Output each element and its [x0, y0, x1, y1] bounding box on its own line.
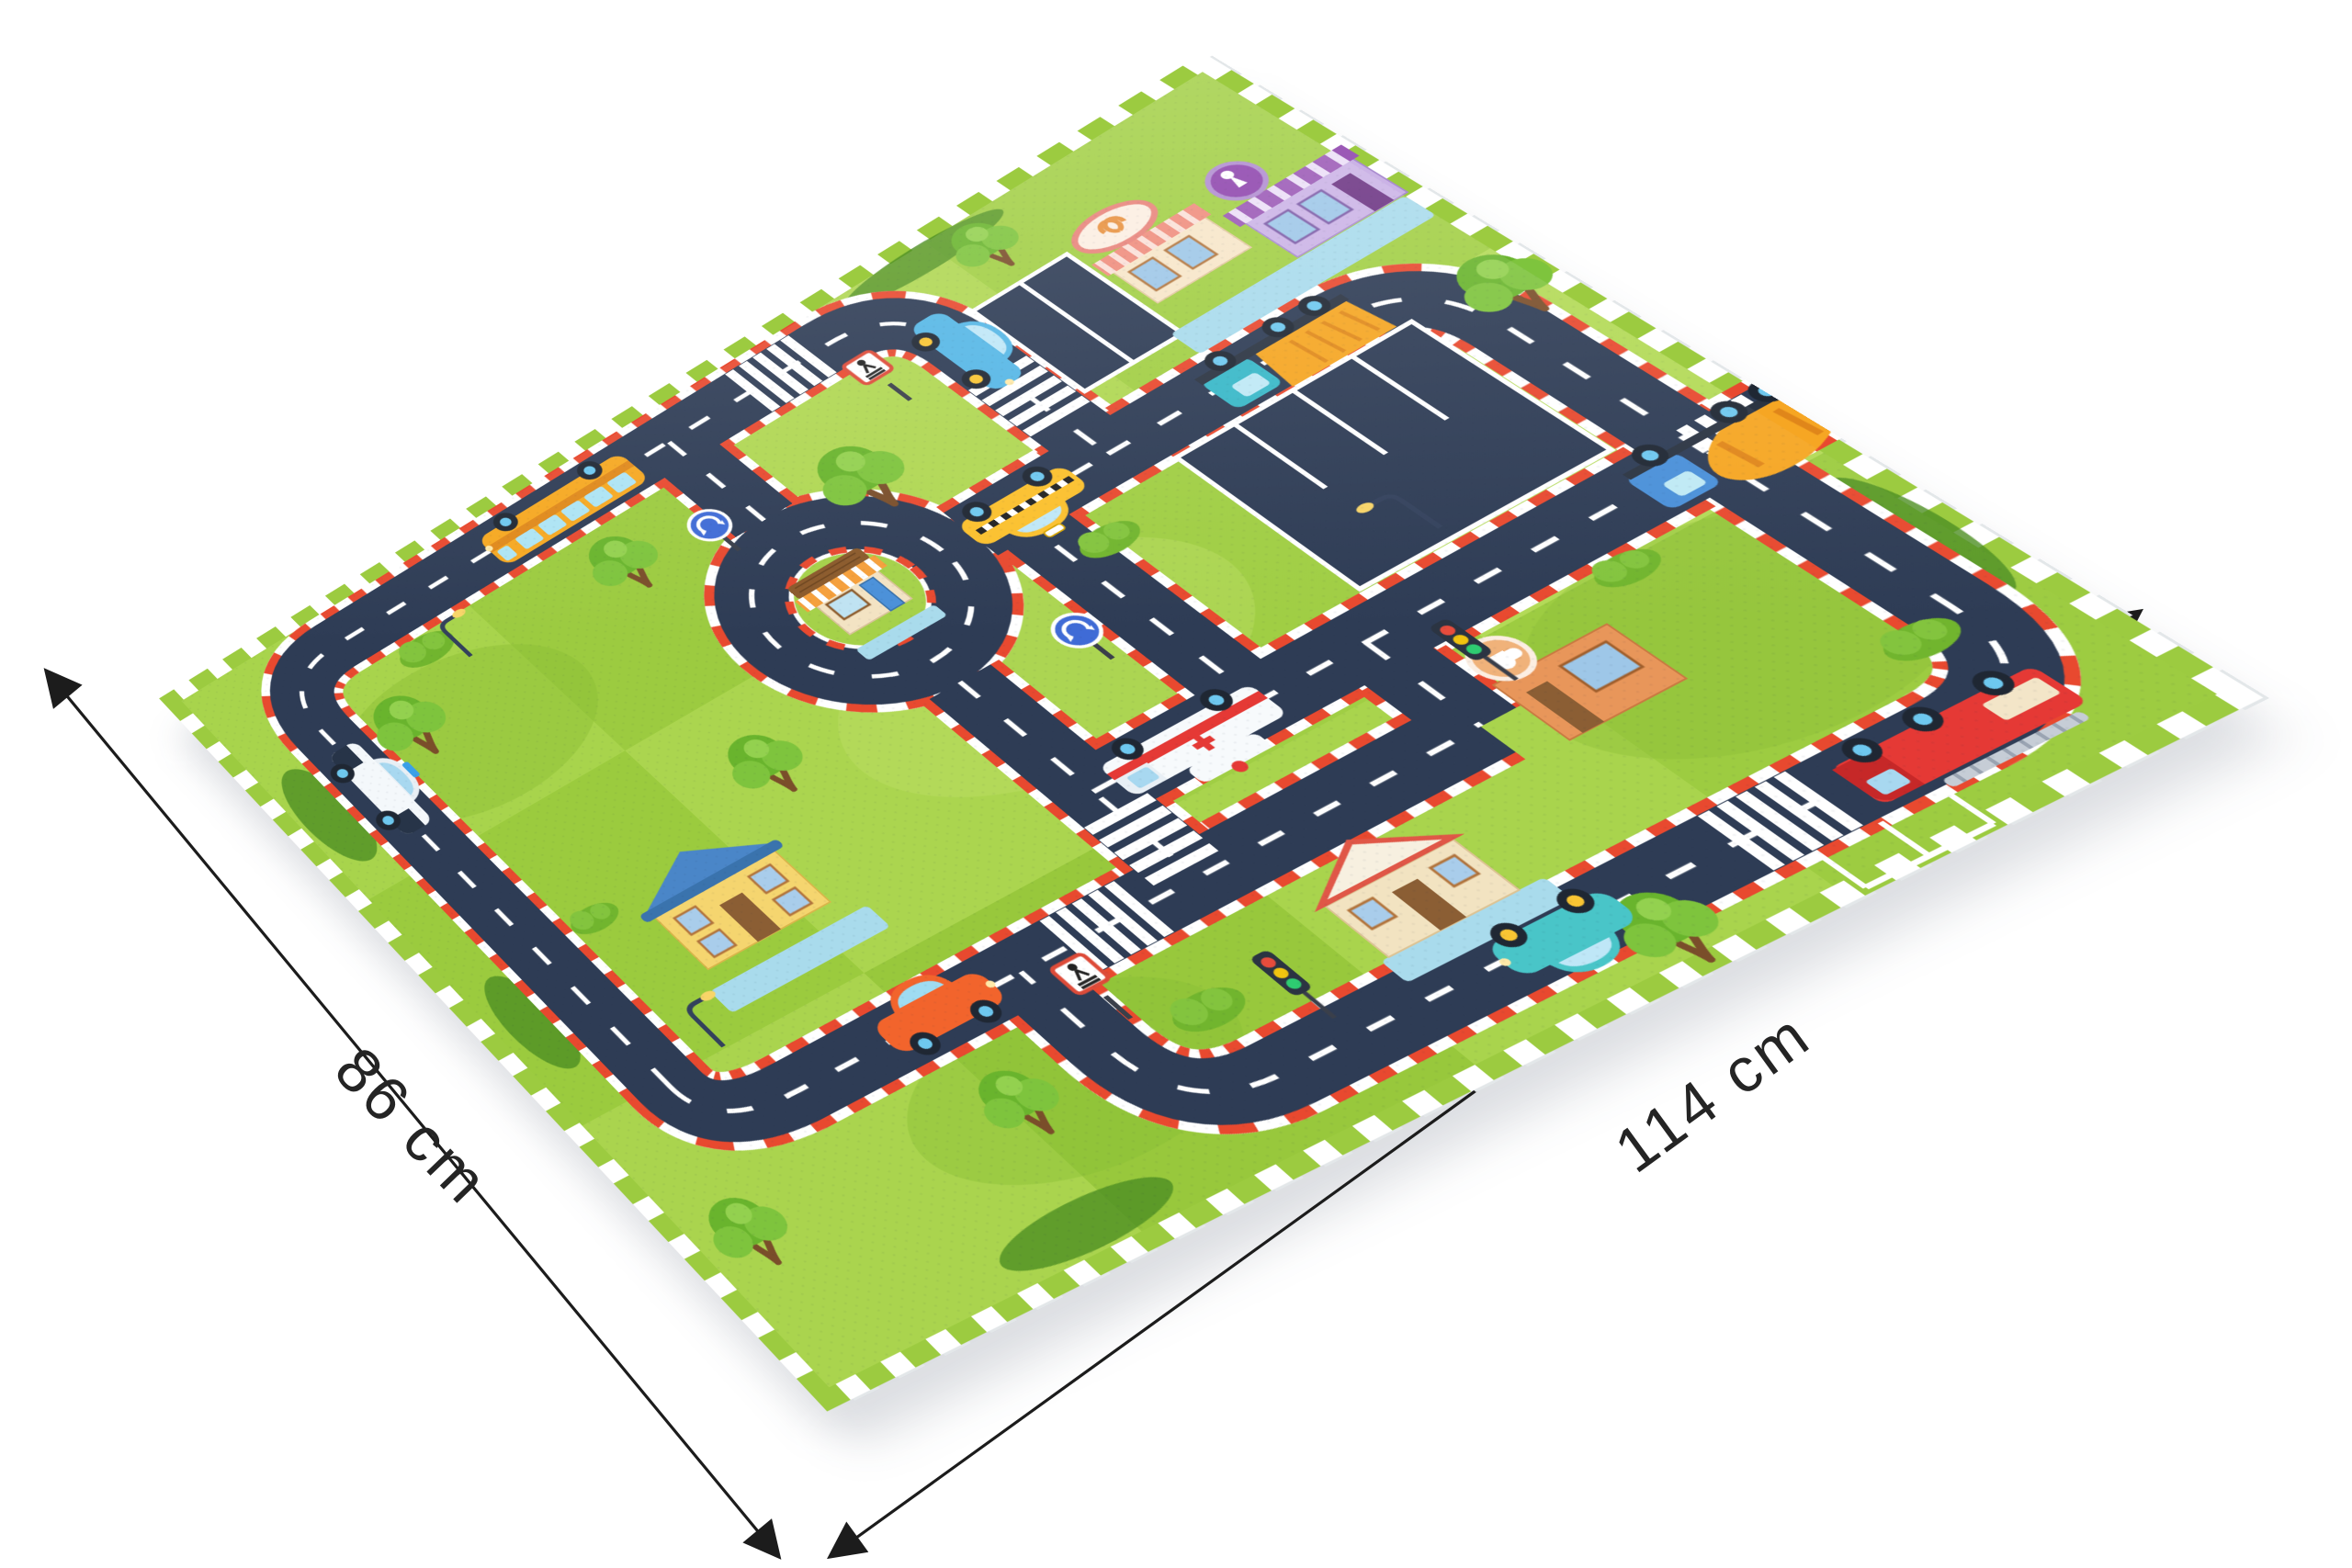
product-photo-stage: 86 cm 114 cm	[0, 0, 2352, 1568]
dimension-label-86: 86 cm	[322, 1034, 503, 1218]
dimension-label-114: 114 cm	[1602, 999, 1823, 1187]
